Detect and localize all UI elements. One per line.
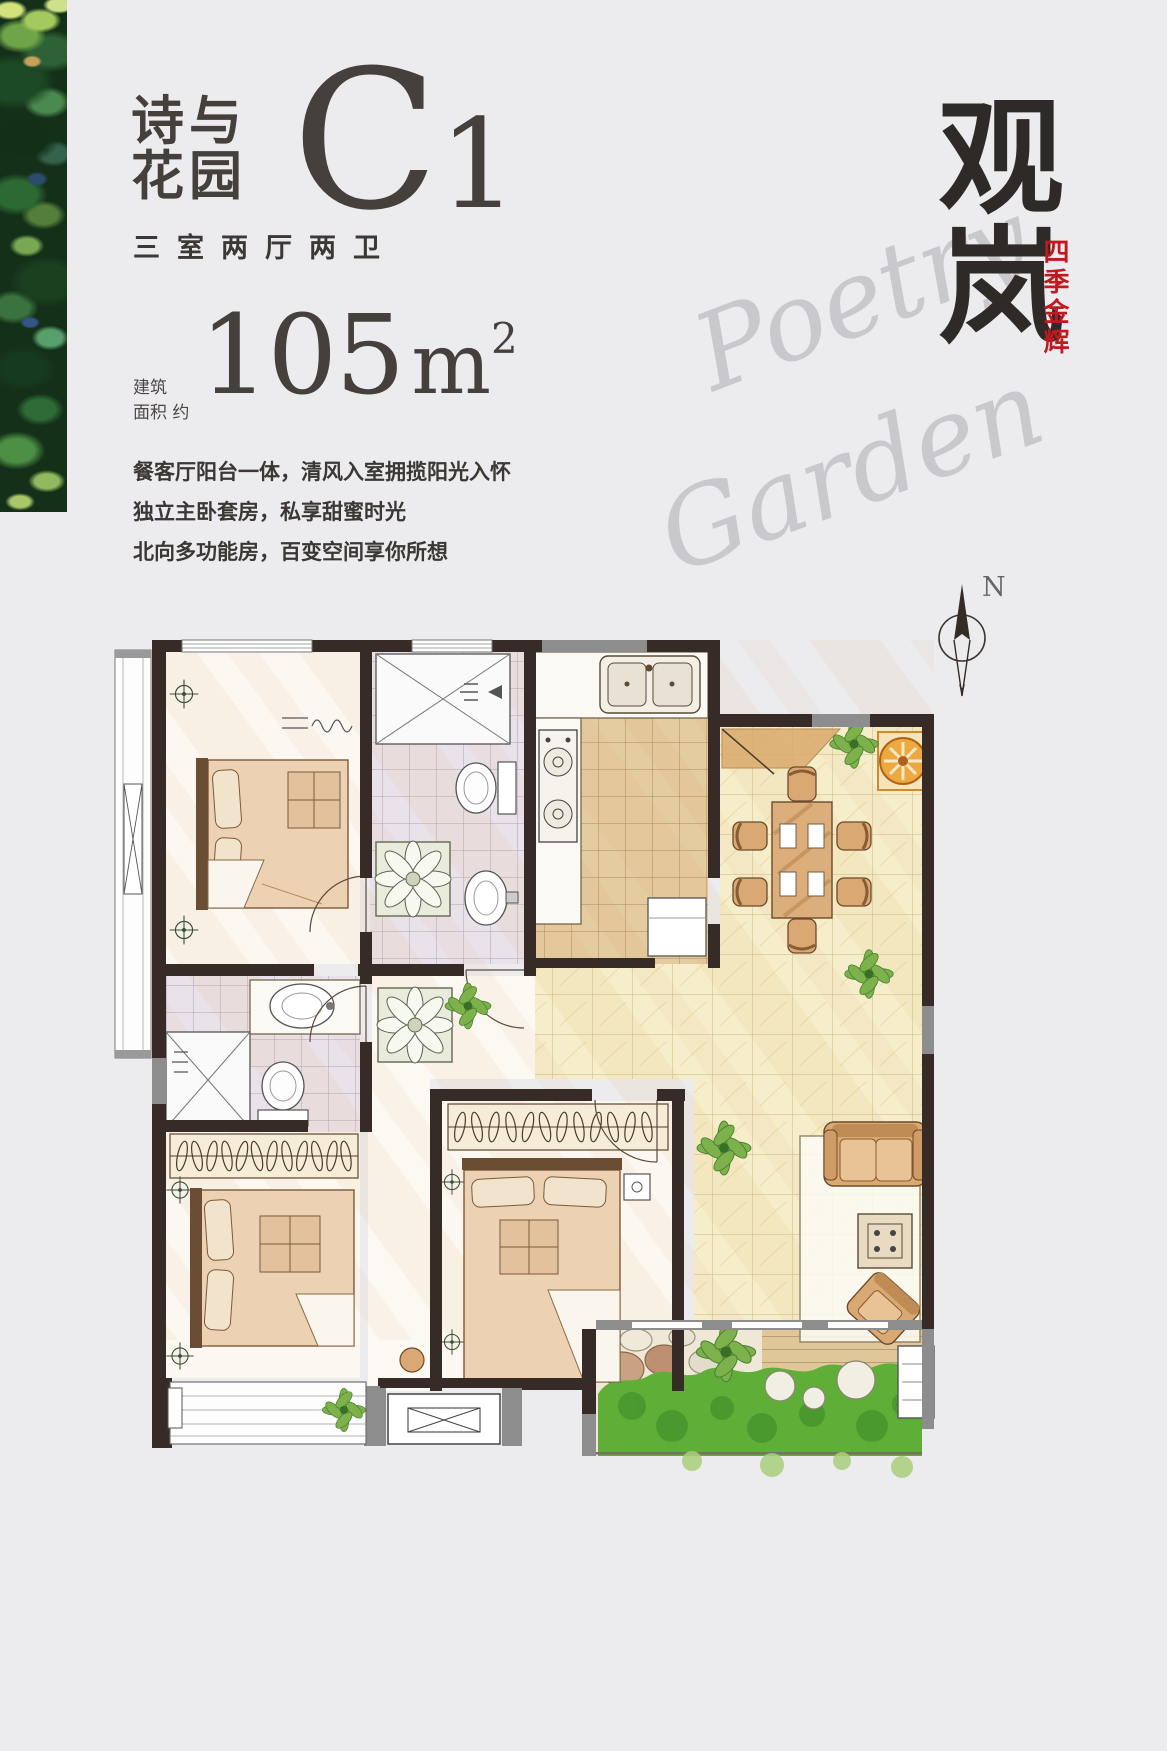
bed-icon (190, 1188, 354, 1348)
decor-tile-icon (377, 987, 453, 1063)
selling-point-1: 餐客厅阳台一体，清风入室拥揽阳光入怀 (133, 452, 511, 492)
area-label-top: 建筑 (133, 376, 189, 401)
bed-icon (196, 758, 348, 910)
area-labels: 建筑 面积 约 (133, 376, 189, 425)
shower-icon (166, 1032, 250, 1128)
fridge-icon (648, 898, 706, 956)
bed-icon (462, 1158, 622, 1382)
nightstand-icon (624, 1174, 650, 1200)
master-bedroom (166, 1134, 358, 1370)
stove-icon (539, 730, 577, 842)
toilet-icon (456, 762, 516, 814)
dining-table-icon (772, 802, 832, 918)
coffee-table-icon (858, 1214, 912, 1268)
area-label-bottom: 面积 约 (133, 401, 189, 426)
brochure-page: Poetry Garden 诗与 花园 C1 三室两厅两卫 建筑 面积 约 10… (0, 0, 1167, 1751)
selling-point-2: 独立主卧套房，私享甜蜜时光 (133, 492, 511, 532)
plan-code: C1 (292, 46, 518, 238)
chair-icon (733, 822, 767, 850)
logo-char-top: 观 (938, 94, 1064, 223)
chair-icon (837, 822, 871, 850)
plan-title-line2: 花园 (131, 149, 247, 204)
wardrobe-icon (170, 1134, 358, 1178)
sofa-icon (824, 1122, 926, 1186)
plan-code-number: 1 (439, 93, 518, 237)
toilet-icon (258, 1062, 308, 1126)
floorplan-drawing (112, 634, 957, 1514)
decor-tile-icon (375, 841, 451, 917)
plan-title-line1: 诗与 (131, 94, 247, 149)
area-value: 105 (199, 300, 403, 410)
plan-title: 诗与 花园 (131, 94, 247, 204)
area-unit-exponent: 2 (491, 314, 518, 363)
window (182, 640, 312, 652)
north-label: N (982, 572, 1006, 603)
chair-icon (788, 767, 816, 801)
chair-icon (788, 919, 816, 953)
bay-window (115, 650, 151, 1058)
orange-side-table-icon (878, 732, 928, 790)
kitchen-sink-icon (600, 656, 700, 713)
watermark-garden: Garden (643, 346, 1059, 598)
sink-icon (270, 984, 334, 1028)
area-unit: m2 (411, 322, 517, 406)
plan-code-letter: C (292, 30, 439, 253)
selling-points: 餐客厅阳台一体，清风入室拥揽阳光入怀 独立主卧套房，私享甜蜜时光 北向多功能房，… (133, 452, 511, 572)
room-spec: 三室两厅两卫 (133, 226, 397, 265)
wardrobe-icon (448, 1104, 668, 1150)
stool-icon (400, 1348, 424, 1372)
shower-icon (376, 654, 510, 744)
sliding-door-slots (632, 1322, 888, 1328)
ac-bay-window (388, 1394, 500, 1444)
window (412, 640, 492, 652)
chair-icon (837, 878, 871, 906)
chair-icon (733, 878, 767, 906)
selling-point-3: 北向多功能房，百变空间享你所想 (133, 532, 511, 572)
area-block: 建筑 面积 约 105 m2 (133, 300, 518, 425)
foliage-painting-strip (0, 0, 67, 512)
garden-terrace (596, 1328, 934, 1478)
brand-seal-text: 四季金辉 (1036, 238, 1073, 358)
